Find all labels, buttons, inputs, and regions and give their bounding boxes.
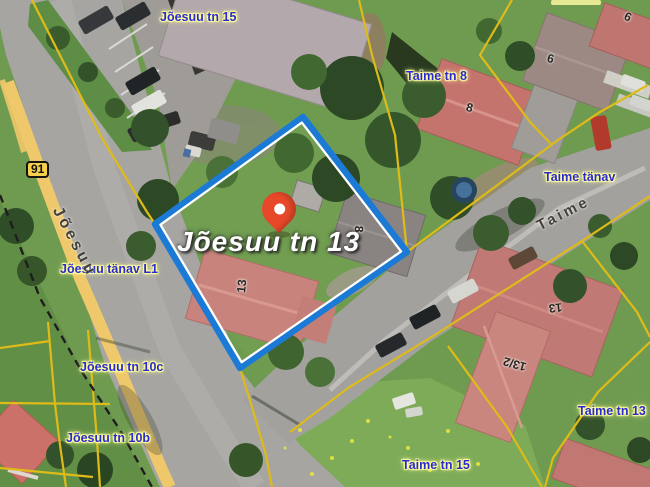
label-joesuu-tn-10c: Jõesuu tn 10c [80, 361, 163, 374]
label-taime-tn-15: Taime tn 15 [402, 459, 470, 472]
label-taime-tanav: Taime tänav [544, 171, 615, 184]
label-taime-tn-13: Taime tn 13 [578, 405, 646, 418]
label-taime-tn-8: Taime tn 8 [406, 70, 467, 83]
building-number-13-main: 13 [234, 279, 249, 294]
building-number-13-se: 13 [548, 300, 563, 316]
selected-address-label: Jõesuu tn 13 [177, 226, 360, 258]
route-number-badge: 91 [26, 161, 49, 178]
label-joesuu-tn-10b: Jõesuu tn 10b [66, 432, 150, 445]
clipped-label-fragment [551, 0, 601, 5]
label-joesuu-tanav-l1: Jõesuu tänav L1 [60, 263, 158, 276]
map-canvas[interactable]: Jõesuu tn 15 Taime tn 8 Taime tänav Jões… [0, 0, 650, 487]
label-joesuu-tn-15: Jõesuu tn 15 [160, 11, 236, 24]
